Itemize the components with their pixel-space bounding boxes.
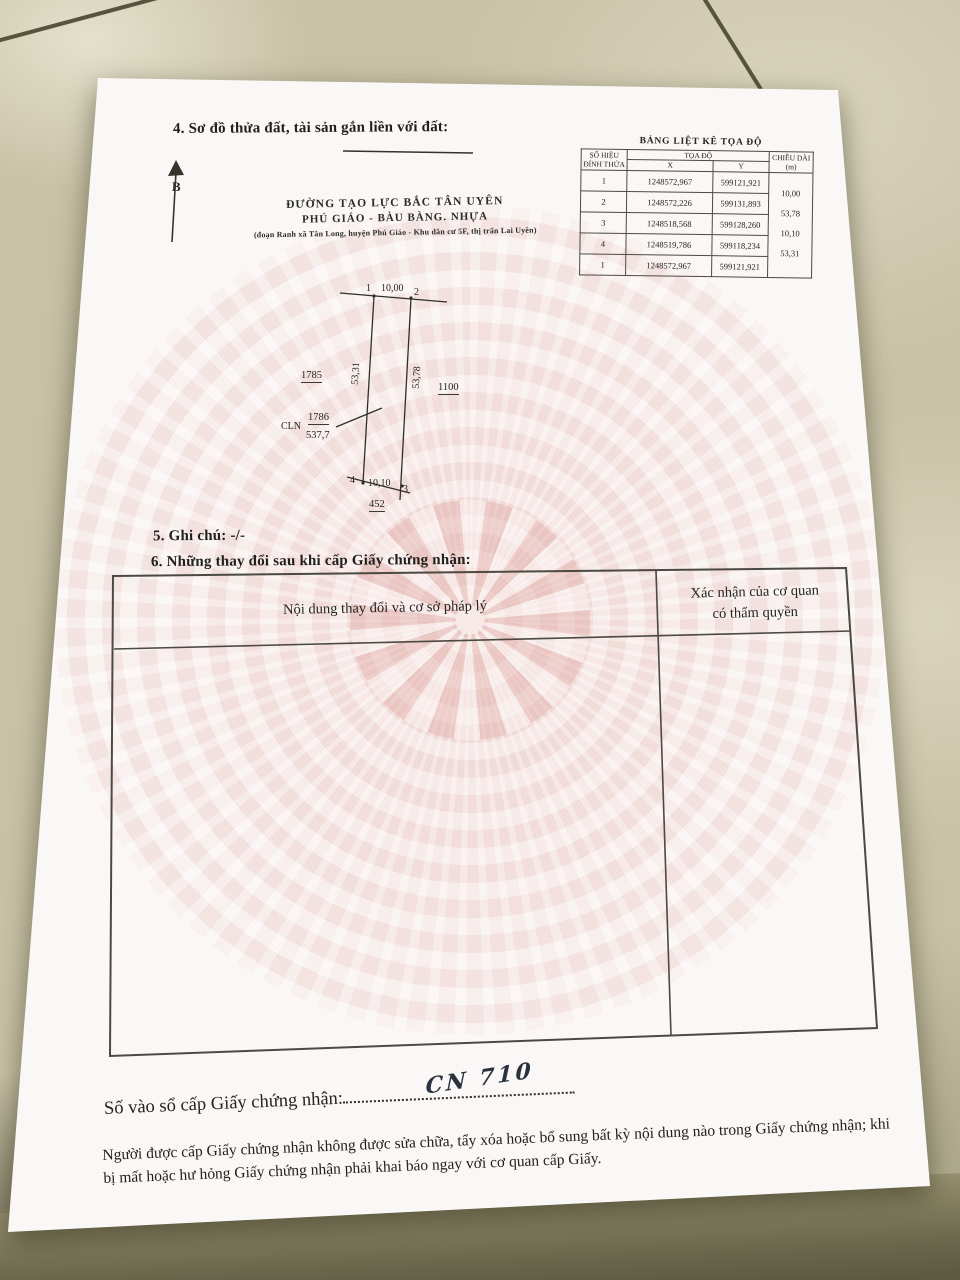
road-label: ĐƯỜNG TẠO LỰC BẮC TÂN UYÊN PHÚ GIÁO - BÀ… (225, 194, 566, 240)
vertex-4-label: 4 (350, 475, 355, 486)
top-length-label: 10,00 (381, 283, 404, 294)
drum-star-watermark (350, 500, 590, 740)
photo-of-certificate: 4. Sơ đồ thửa đất, tài sản gắn liền với … (0, 0, 960, 1280)
parcel-number-label: 1786 (308, 412, 329, 425)
certificate-paper: 4. Sơ đồ thửa đất, tài sản gắn liền với … (0, 0, 960, 1280)
bottom-length-label: 10,10 (368, 478, 391, 489)
changes-col2-header: Xác nhận của cơ quan có thẩm quyền (660, 580, 851, 627)
certificate-page: 4. Sơ đồ thửa đất, tài sản gắn liền với … (0, 0, 960, 1280)
col-header-y: Y (713, 161, 769, 172)
col-header-vertex: SỐ HIỆU ĐỈNH THỬA (581, 149, 627, 170)
footer-notice: Người được cấp Giấy chứng nhận không đượ… (102, 1112, 895, 1190)
north-label: B (172, 179, 181, 195)
title-underline (343, 151, 473, 153)
neighbor-parcel-right: 1100 (438, 382, 459, 395)
registry-number-row: Số vào sổ cấp Giấy chứng nhận: CN 710 (104, 1070, 744, 1120)
section6-title: 6. Những thay đổi sau khi cấp Giấy chứng… (151, 552, 471, 571)
neighbor-parcel-left: 1785 (301, 370, 322, 383)
vertex-1-label: 1 (366, 283, 371, 294)
land-use-code-label: CLN (281, 421, 301, 432)
registry-label: Số vào sổ cấp Giấy chứng nhận: (104, 1089, 344, 1119)
coordinate-table: SỐ HIỆU ĐỈNH THỬA TỌA ĐỘ CHIỀU DÀI (m) X… (579, 148, 814, 278)
vertex-3-label: 3 (403, 484, 408, 495)
col-header-length: CHIỀU DÀI (m) (769, 151, 813, 172)
length-column: 10,00 53,78 10,10 53,31 (768, 172, 813, 278)
neighbor-parcel-bottom: 452 (369, 499, 385, 512)
road-line-2: PHÚ GIÁO - BÀU BÀNG. NHỰA (225, 209, 565, 227)
vertex-2-label: 2 (414, 287, 419, 298)
section4-title: 4. Sơ đồ thửa đất, tài sản gắn liền với … (173, 119, 448, 138)
parcel-area-label: 537,7 (306, 430, 330, 441)
coordinate-table-block: BẢNG LIỆT KÊ TỌA ĐỘ SỐ HIỆU ĐỈNH THỬA TỌ… (579, 135, 821, 278)
north-arrow-icon (168, 160, 184, 242)
coordinate-table-title: BẢNG LIỆT KÊ TỌA ĐỘ (581, 135, 821, 148)
section5-title: 5. Ghi chú: -/- (153, 528, 245, 546)
